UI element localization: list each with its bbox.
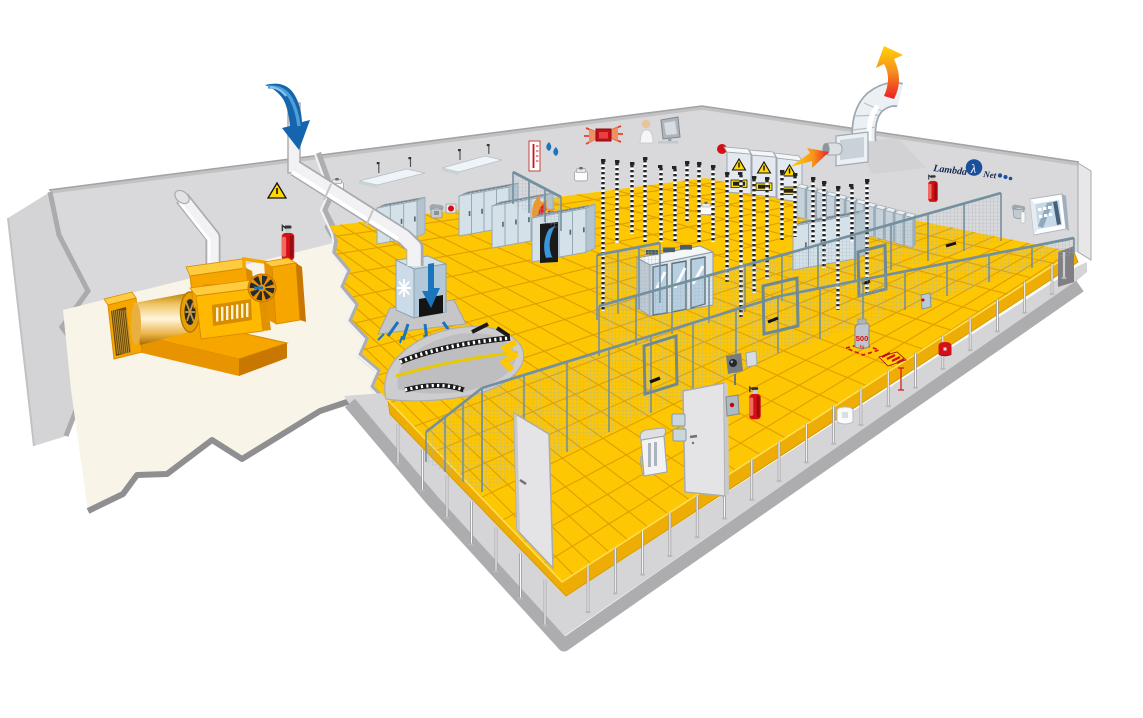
svg-text:500: 500 [856,334,869,343]
svg-text:kg: kg [860,344,865,349]
svg-text:λ: λ [970,162,977,176]
svg-text:Net: Net [982,169,998,181]
